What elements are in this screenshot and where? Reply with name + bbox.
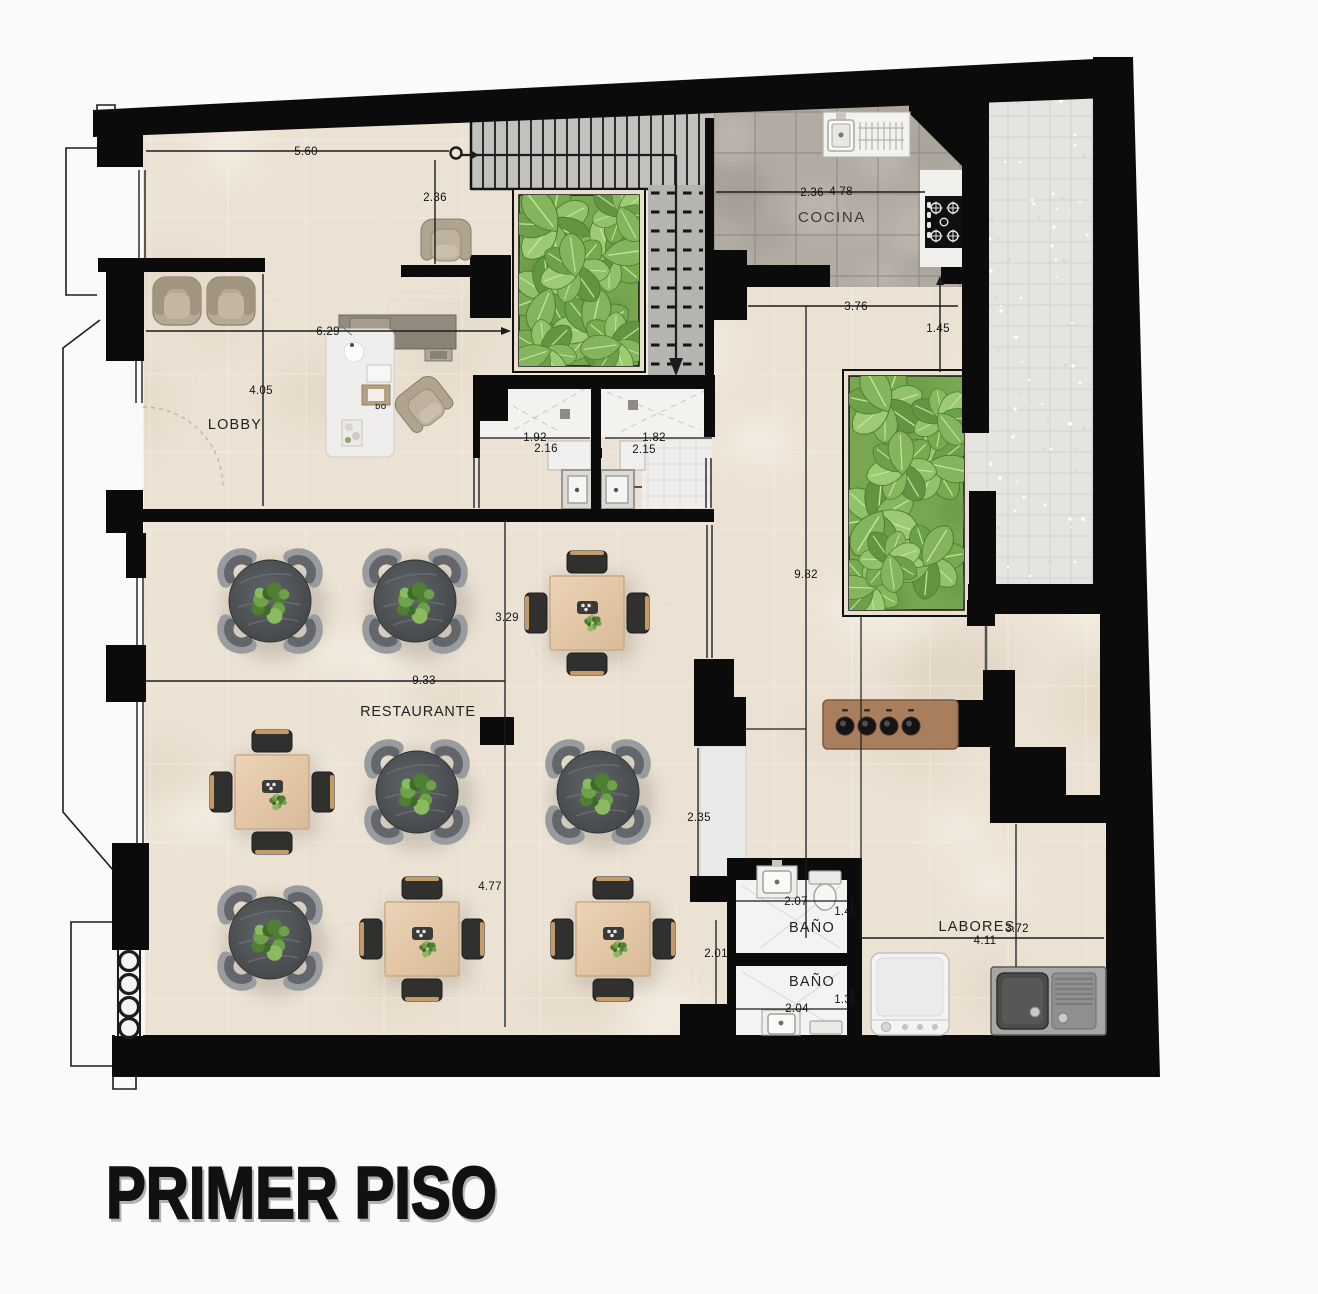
svg-text:1.82: 1.82 <box>642 432 666 444</box>
svg-text:9.33: 9.33 <box>412 675 436 687</box>
svg-text:DO: DO <box>375 404 387 411</box>
svg-text:5.60: 5.60 <box>294 146 318 158</box>
svg-text:2.01: 2.01 <box>704 948 728 960</box>
svg-text:4.05: 4.05 <box>249 385 273 397</box>
svg-text:3.29: 3.29 <box>495 612 519 624</box>
svg-text:9.82: 9.82 <box>794 569 818 581</box>
svg-text:2.07: 2.07 <box>784 896 808 908</box>
svg-text:COCINA: COCINA <box>798 209 866 226</box>
svg-text:6.29: 6.29 <box>316 326 340 338</box>
svg-text:2.15: 2.15 <box>632 444 656 456</box>
svg-text:4 78: 4 78 <box>829 186 853 198</box>
svg-text:3.76: 3.76 <box>844 301 868 313</box>
svg-text:RESTAURANTE: RESTAURANTE <box>360 704 476 720</box>
svg-text:2.16: 2.16 <box>534 443 558 455</box>
svg-text:PRIMER PISO: PRIMER PISO <box>106 1153 497 1234</box>
svg-text:1.45: 1.45 <box>926 323 950 335</box>
svg-text:1.31: 1.31 <box>834 994 858 1006</box>
svg-text:4.77: 4.77 <box>478 881 502 893</box>
svg-text:LOBBY: LOBBY <box>208 417 262 433</box>
svg-text:1.43: 1.43 <box>834 906 858 918</box>
svg-text:2.36: 2.36 <box>800 187 824 199</box>
svg-text:2.36: 2.36 <box>423 192 447 204</box>
svg-text:2.35: 2.35 <box>687 812 711 824</box>
svg-text:2.04: 2.04 <box>785 1003 809 1015</box>
svg-text:4.11: 4.11 <box>974 935 997 947</box>
svg-text:BAÑO: BAÑO <box>789 973 835 990</box>
svg-text:BAÑO: BAÑO <box>789 919 835 936</box>
svg-text:LABORES: LABORES <box>939 919 1016 935</box>
